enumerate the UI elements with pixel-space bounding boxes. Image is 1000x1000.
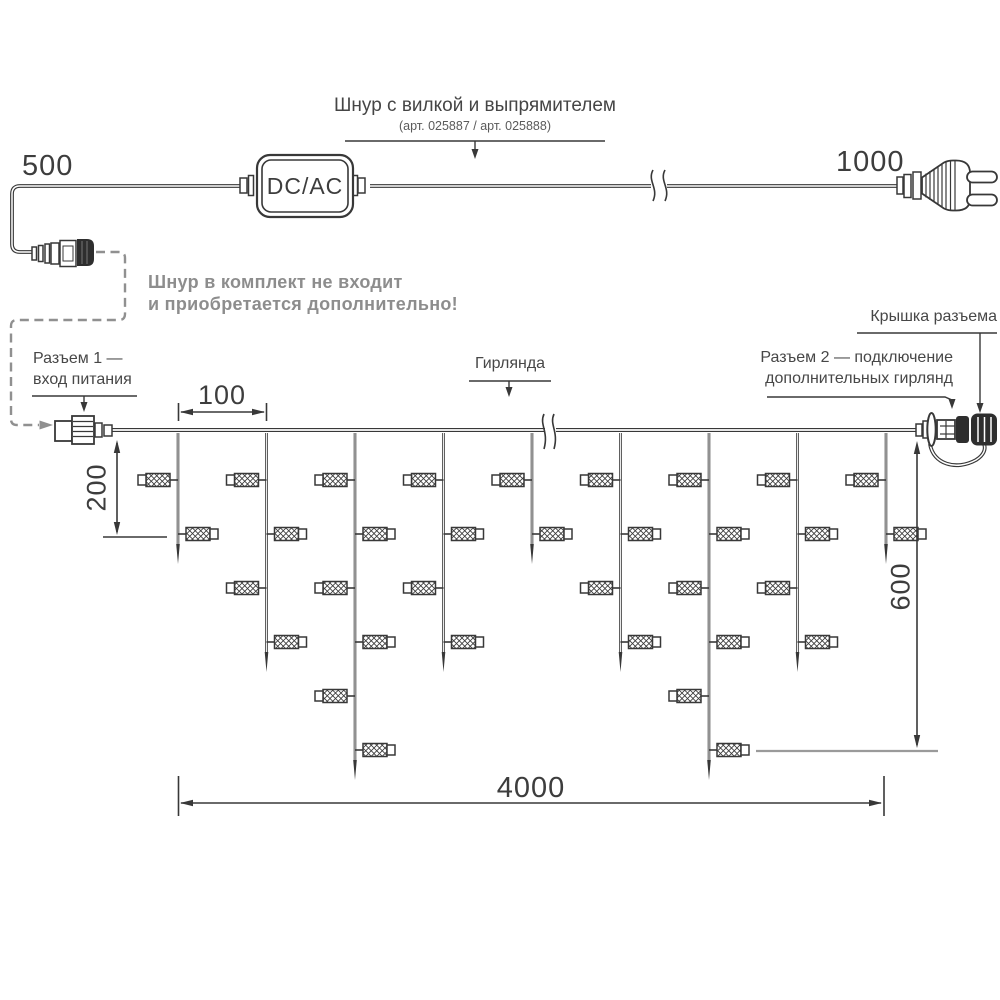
connector1-label-line1: Разъем 1 — [33,350,123,368]
garland-drop [581,433,661,672]
lamp-icon [798,528,838,541]
drop-tip [530,544,534,564]
cap-label: Крышка разъема [790,308,997,326]
lamp-icon [444,636,484,649]
lamp-icon [227,582,267,595]
lamp-icon [315,582,355,595]
connector2-callout-line [767,397,956,409]
lamp-icon [886,528,926,541]
lamp-icon [138,474,178,487]
dim-200-lines [103,440,167,537]
lamp-icon [227,474,267,487]
lamp-icon [669,474,709,487]
lamp-icon [581,474,621,487]
plug-prong [967,172,997,183]
not-included-note-line1: Шнур в комплект не входит [148,272,403,293]
connector-cap-icon [971,414,997,446]
not-included-dashed-path [11,252,125,430]
garland-callout-line [469,381,551,397]
drop-tip [619,652,623,672]
garland-drops [138,433,926,780]
lamp-icon [355,636,395,649]
lamp-icon [758,474,798,487]
drop-tip [265,652,269,672]
drop-tip [796,652,800,672]
lamp-icon [404,474,444,487]
lamp-icon [709,744,749,757]
drop-tip [176,544,180,564]
lamp-icon [709,636,749,649]
connector2-icon [916,413,997,465]
lamp-icon [444,528,484,541]
dim-4000-label: 4000 [471,772,591,805]
connector2-label-line2: дополнительных гирлянд [700,370,953,388]
connector1-label-line2: вход питания [33,371,132,389]
lamp-icon [355,744,395,757]
lamp-icon [669,582,709,595]
dim-200-label: 200 [81,448,112,528]
dim-1000-label: 1000 [836,146,905,179]
lamp-icon [758,582,798,595]
garland-drop [846,433,926,564]
lamp-icon [267,636,307,649]
garland-drop [138,433,218,564]
garland-drop [758,433,838,672]
lamp-icon [798,636,838,649]
cord-break-icon [651,170,666,201]
dc-ac-label: DC/AC [257,173,353,199]
garland-drop [315,433,395,780]
dim-100-label: 100 [182,380,262,411]
cord-part-numbers: (арт. 025887 / арт. 025888) [275,119,675,133]
drop-tip [442,652,446,672]
lamp-icon [267,528,307,541]
garland-drop [492,433,572,564]
lamp-icon [532,528,572,541]
lamp-icon [621,528,661,541]
lamp-icon [315,474,355,487]
drop-tip [353,760,357,780]
lamp-icon [709,528,749,541]
lamp-icon [846,474,886,487]
lamp-icon [404,582,444,595]
cord-connector-icon [32,239,94,267]
cord-title-callout-line [345,141,605,159]
garland-spec-diagram: 500 1000 DC/AC Шнур с вилкой и выпрямите… [0,0,1000,1000]
lamp-icon [178,528,218,541]
lamp-icon [669,690,709,703]
garland-label: Гирлянда [430,355,590,373]
not-included-note-line2: и приобретается дополнительно! [148,294,458,315]
connector1-icon [55,416,112,444]
connector2-label-line1: Разъем 2 — подключение [700,349,953,367]
dimension-marks [103,403,938,816]
lamp-icon [355,528,395,541]
dim-500-label: 500 [22,150,73,183]
drop-tip [707,760,711,780]
garland-drop [227,433,307,672]
dashed-arrowhead-icon [40,421,54,430]
lamp-icon [621,636,661,649]
lamp-icon [492,474,532,487]
garland-drop [669,433,749,780]
wire-break-icon [543,414,556,449]
lamp-icon [315,690,355,703]
garland-drop [404,433,484,672]
lamp-icon [581,582,621,595]
connector1-callout-line [32,396,137,412]
dim-600-label: 600 [885,547,916,627]
plug-prong [967,195,997,206]
garland-assembly [32,333,997,780]
cord-title: Шнур с вилкой и выпрямителем [275,95,675,117]
euro-plug-icon [897,161,997,211]
